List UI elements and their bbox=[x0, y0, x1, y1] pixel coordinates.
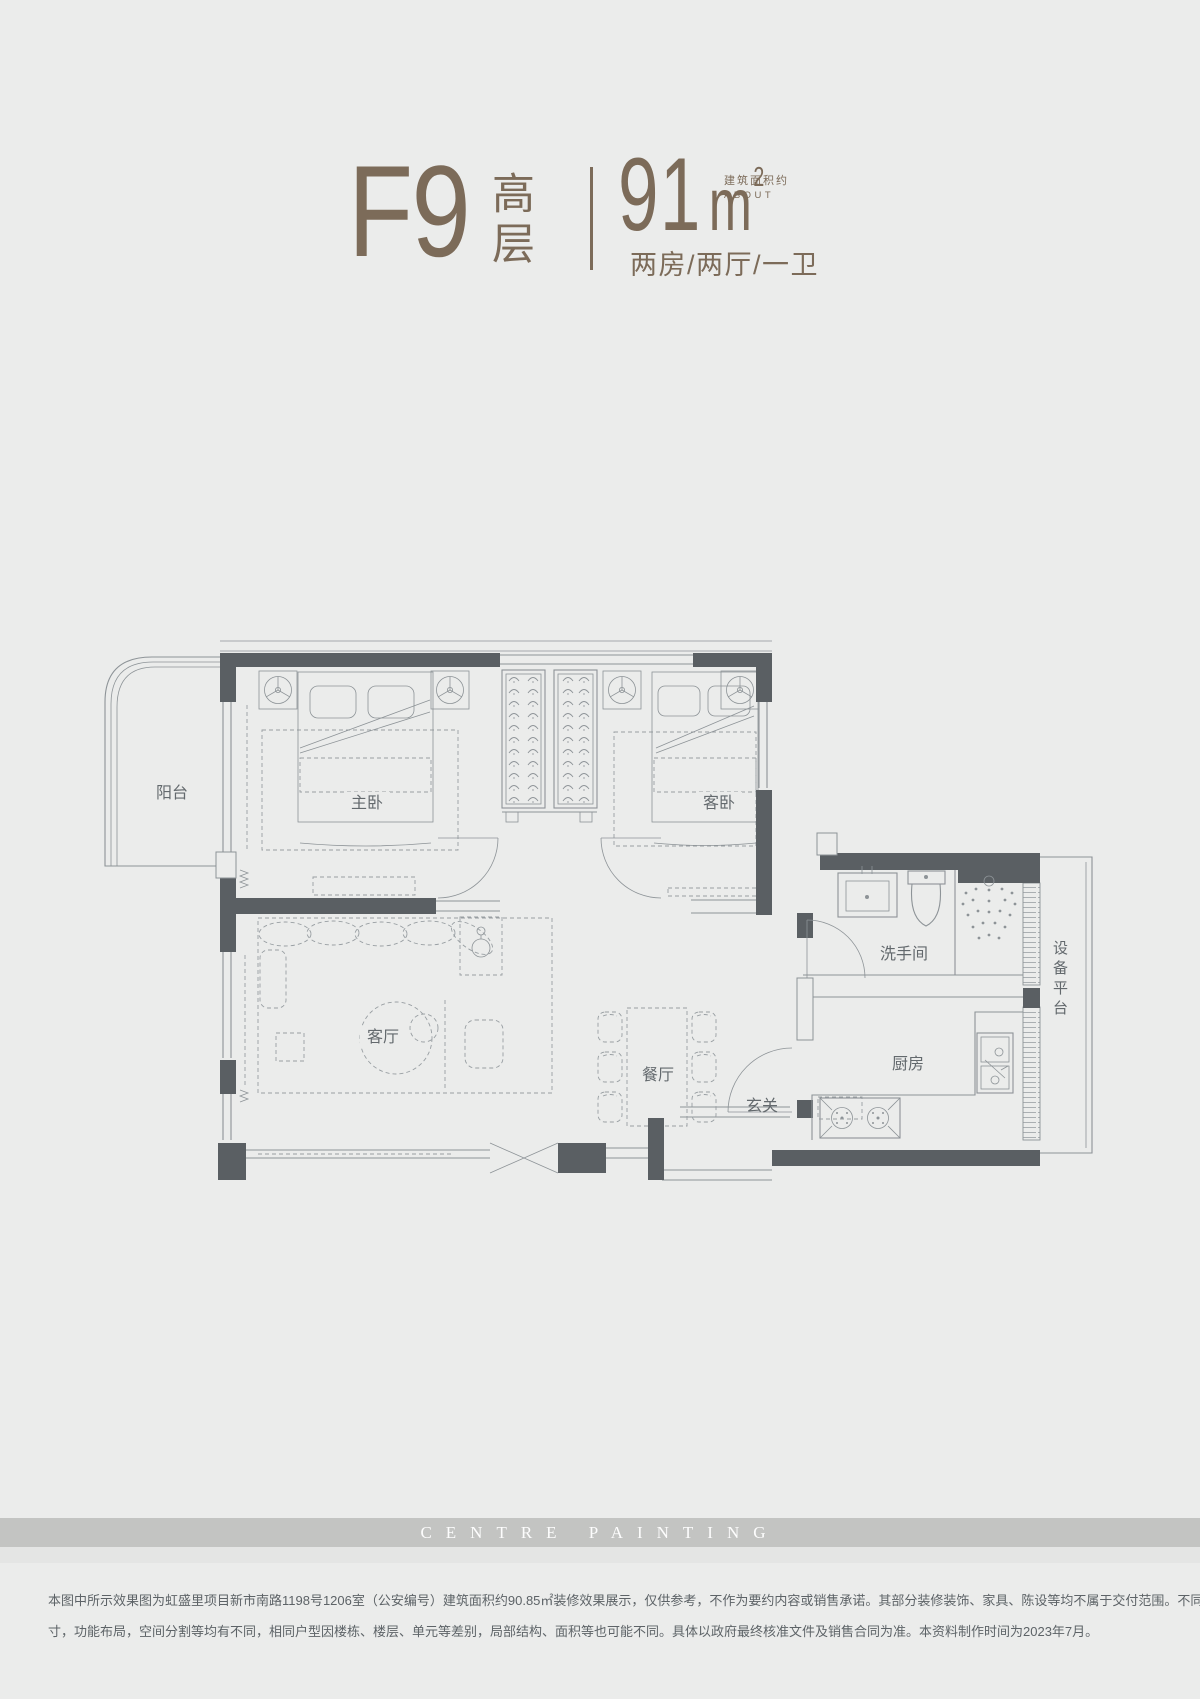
floorplan-poster: F9 高层 91 m 2 建筑面积约 ABOUT 两房/两厅/一卫 bbox=[0, 0, 1200, 1699]
watermark-text: CENTRE PAINTING bbox=[420, 1523, 779, 1542]
room-label-living-room: 客厅 bbox=[367, 1028, 399, 1046]
windows bbox=[223, 655, 1023, 1180]
wardrobes bbox=[502, 670, 597, 822]
area-note-cn: 建筑面积约 bbox=[724, 172, 789, 188]
master-bedroom-furniture bbox=[247, 671, 469, 895]
header-divider bbox=[590, 167, 593, 270]
room-label-equipment-platform: 设备平台 bbox=[1049, 940, 1070, 1020]
disclaimer: 本图中所示效果图为虹盛里项目新市南路1198号1206室（公安编号）建筑面积约9… bbox=[48, 1585, 1158, 1647]
kitchen-fixtures bbox=[812, 1012, 1023, 1140]
room-label-guest-bedroom: 客卧 bbox=[703, 794, 735, 812]
balcony-outline bbox=[105, 657, 220, 866]
area-value: 91 bbox=[618, 150, 702, 242]
room-label-master-bedroom: 主卧 bbox=[351, 794, 383, 812]
disclaimer-line-2: 寸，功能布局，空间分割等均有不同，相同户型因楼栋、楼层、单元等差别，局部结构、面… bbox=[48, 1616, 1158, 1647]
plan-code: F9 bbox=[348, 158, 469, 265]
disclaimer-line-1: 本图中所示效果图为虹盛里项目新市南路1198号1206室（公安编号）建筑面积约9… bbox=[48, 1585, 1158, 1616]
living-room-furniture bbox=[245, 915, 552, 1093]
room-label-kitchen: 厨房 bbox=[892, 1055, 924, 1073]
room-label-balcony: 阳台 bbox=[156, 784, 188, 802]
area-note-en: ABOUT bbox=[724, 190, 789, 201]
plan-header: F9 高层 91 m 2 建筑面积约 ABOUT 两房/两厅/一卫 bbox=[0, 0, 1200, 320]
room-label-bathroom: 洗手间 bbox=[880, 945, 928, 963]
watermark-strip bbox=[0, 1547, 1200, 1563]
shower-spray-dots bbox=[962, 888, 1017, 940]
layout-description: 两房/两厅/一卫 bbox=[630, 243, 819, 282]
watermark-band: CENTRE PAINTING bbox=[0, 1518, 1200, 1547]
room-label-entry: 玄关 bbox=[746, 1097, 778, 1115]
guest-bedroom-furniture bbox=[603, 671, 759, 896]
shaft-box bbox=[490, 1143, 558, 1173]
plan-type: 高层 bbox=[492, 170, 542, 270]
bedroom-doors bbox=[438, 838, 661, 898]
room-label-dining-room: 餐厅 bbox=[642, 1066, 674, 1084]
floorplan-drawing: 阳台 主卧 客卧 客厅 餐厅 玄关 厨房 洗手间 bbox=[95, 575, 1105, 1190]
area-notes: 建筑面积约 ABOUT bbox=[724, 172, 789, 201]
